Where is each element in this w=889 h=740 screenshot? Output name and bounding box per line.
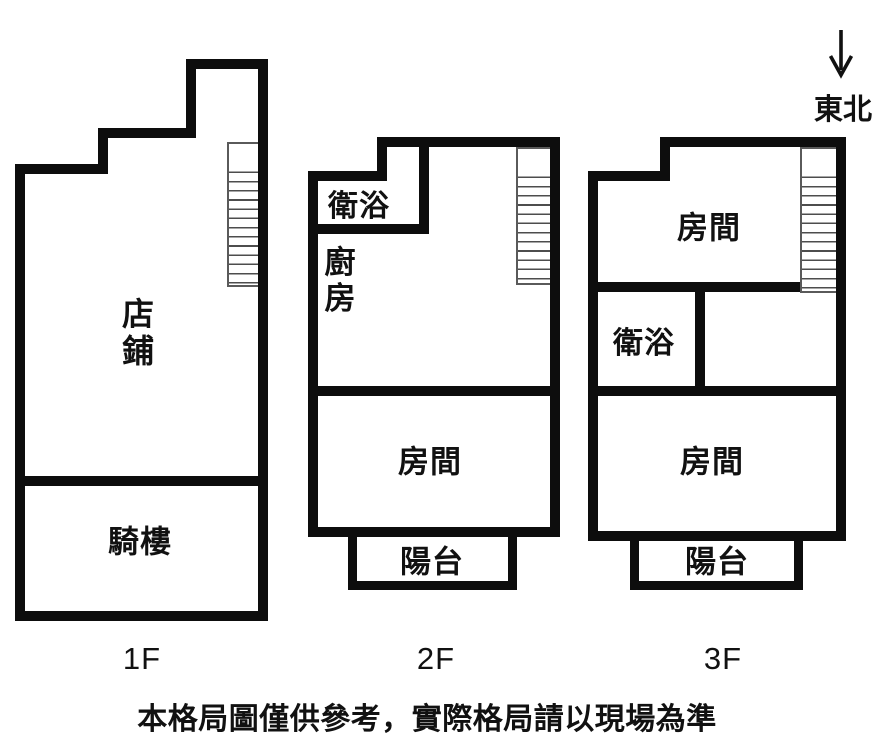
2f-stair-treads (518, 169, 550, 283)
3f-stair-treads (802, 169, 836, 291)
room-label-balcony-3f: 陽台 (685, 547, 749, 578)
2f-balcony-wall-bottom (348, 581, 517, 590)
room-label-bedroom-3f-top: 房間 (677, 213, 741, 244)
3f-wall-bottom (588, 531, 846, 541)
floor-plan-canvas: 東北 店鋪 騎樓 1F 衛浴 廚房 房間 陽台 2F (0, 0, 889, 740)
2f-wall-bathroom-bottom (308, 224, 429, 234)
1f-wall-divider (15, 476, 268, 486)
3f-wall-top (660, 137, 846, 147)
1f-wall-top (186, 59, 268, 69)
3f-wall-notch-horizontal (588, 171, 669, 181)
1f-wall-left (15, 164, 25, 621)
2f-wall-bathroom-right (419, 137, 429, 234)
room-label-bedroom-2f: 房間 (398, 447, 462, 478)
2f-wall-bottom (308, 527, 560, 537)
room-label-bedroom-3f-bottom: 房間 (680, 447, 744, 478)
room-label-bathroom-2f: 衛浴 (328, 192, 390, 222)
2f-wall-top (377, 137, 560, 147)
3f-stairs (800, 147, 836, 293)
3f-wall-right (836, 137, 846, 541)
compass-direction-label: 東北 (814, 86, 872, 128)
2f-wall-right (550, 137, 560, 537)
floor-label-3f: 3F (704, 641, 742, 677)
room-label-shop: 店鋪 (120, 296, 156, 370)
3f-wall-divider (588, 386, 846, 396)
3f-wall-bathroom-right (695, 282, 705, 396)
north-arrow-icon (827, 28, 855, 80)
1f-stairs (227, 142, 258, 287)
2f-stairs (516, 147, 550, 285)
room-label-kitchen: 廚房 (322, 245, 358, 317)
2f-wall-divider (308, 386, 560, 396)
room-label-balcony-2f: 陽台 (400, 547, 464, 578)
1f-stair-treads (229, 164, 258, 285)
3f-wall-left (588, 171, 598, 541)
1f-wall-step-lower-horizontal (15, 164, 108, 174)
floor-label-2f: 2F (417, 641, 455, 677)
room-label-arcade: 騎樓 (108, 527, 172, 558)
1f-wall-bottom (15, 611, 268, 621)
1f-wall-step-upper-vertical (186, 59, 196, 138)
disclaimer-text: 本格局圖僅供參考，實際格局請以現場為準 (137, 694, 717, 738)
3f-balcony-wall-bottom (630, 581, 803, 590)
room-label-bathroom-3f: 衛浴 (613, 329, 675, 359)
1f-wall-right (258, 59, 268, 621)
floor-label-1f: 1F (123, 641, 161, 677)
1f-wall-step-upper-horizontal (98, 128, 193, 138)
2f-wall-notch-horizontal (308, 171, 387, 181)
